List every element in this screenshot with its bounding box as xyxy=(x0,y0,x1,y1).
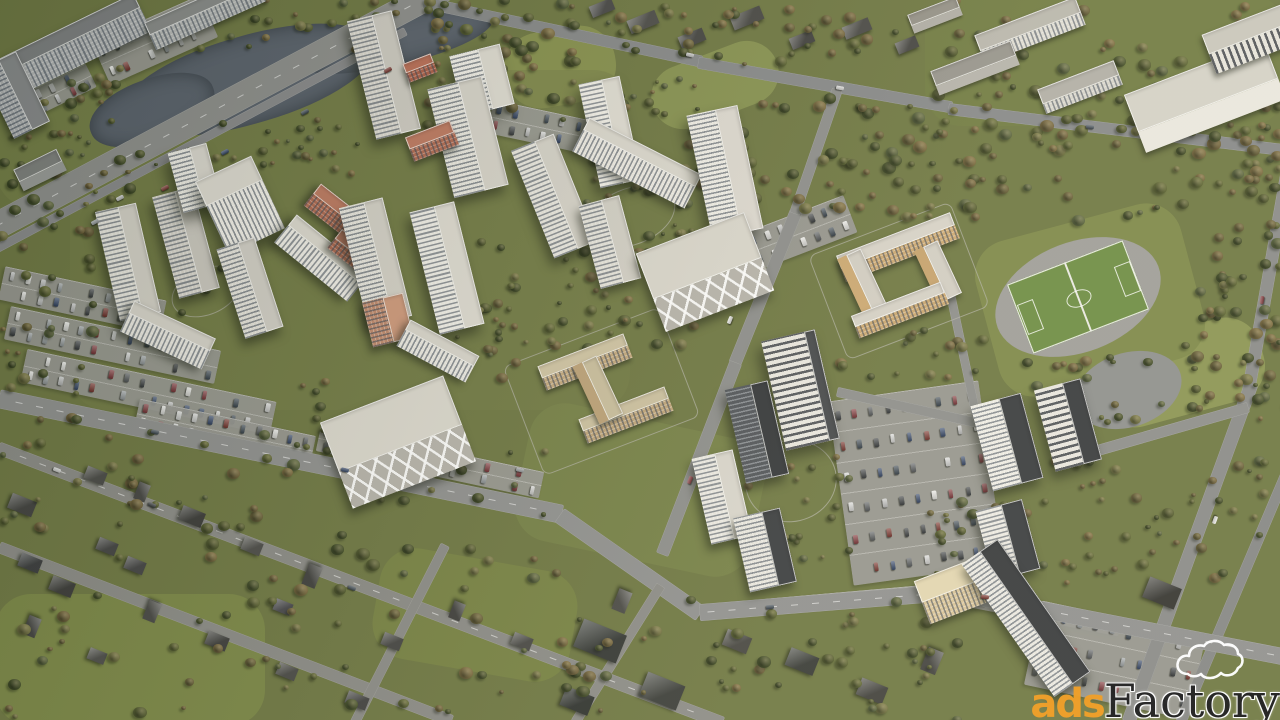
tree xyxy=(286,139,291,143)
tree xyxy=(200,441,208,448)
tree xyxy=(465,544,476,553)
tree xyxy=(470,613,483,624)
tree xyxy=(490,17,500,26)
tree xyxy=(1071,114,1083,124)
parked-car xyxy=(915,493,921,503)
tree xyxy=(598,708,603,713)
parked-car xyxy=(1087,649,1093,659)
tree xyxy=(1258,122,1266,129)
tree xyxy=(577,617,583,622)
parked-car xyxy=(48,83,56,93)
tree xyxy=(557,637,568,647)
parked-car xyxy=(223,419,229,429)
tree xyxy=(1226,277,1237,286)
tree xyxy=(956,342,968,352)
tree xyxy=(818,155,829,164)
tree xyxy=(308,157,313,161)
tree xyxy=(245,658,256,667)
tree xyxy=(1234,379,1243,387)
tree xyxy=(370,0,379,6)
tree xyxy=(795,533,804,540)
tree xyxy=(661,111,667,116)
tree xyxy=(250,15,260,23)
tree xyxy=(392,10,399,16)
tree xyxy=(1253,383,1258,387)
parked-car xyxy=(172,363,178,373)
tree xyxy=(1189,499,1195,504)
tree xyxy=(231,155,237,160)
tree xyxy=(246,44,252,49)
tree xyxy=(1233,237,1242,245)
tree xyxy=(317,126,323,131)
tree xyxy=(7,179,19,189)
tree xyxy=(219,120,227,127)
tree xyxy=(294,442,300,447)
tree xyxy=(941,118,950,125)
tree xyxy=(459,667,473,679)
tree xyxy=(1252,394,1264,405)
tree xyxy=(37,217,49,227)
tree xyxy=(862,134,868,139)
tree xyxy=(1010,84,1016,89)
tree xyxy=(27,194,40,205)
tree xyxy=(833,202,846,213)
tree xyxy=(1212,251,1223,260)
tree xyxy=(1138,59,1151,70)
parked-car xyxy=(851,409,857,419)
parked-car xyxy=(124,352,130,362)
tree xyxy=(1057,63,1070,74)
parked-car xyxy=(176,410,182,420)
tree xyxy=(298,145,304,150)
tree xyxy=(788,51,795,57)
tree xyxy=(1215,497,1223,504)
tree xyxy=(1104,419,1111,425)
tree xyxy=(93,592,102,599)
tree xyxy=(445,21,453,28)
tree xyxy=(1080,356,1092,366)
tree xyxy=(19,243,27,250)
tree xyxy=(1080,484,1086,489)
tree xyxy=(1247,145,1260,156)
parked-car xyxy=(143,404,149,414)
tree xyxy=(258,147,268,156)
tree xyxy=(259,430,270,440)
tree xyxy=(1209,131,1221,141)
tree xyxy=(664,9,674,18)
tree xyxy=(661,232,666,236)
parked-car xyxy=(940,428,946,438)
tree xyxy=(274,139,280,144)
tree xyxy=(35,438,46,448)
tree xyxy=(803,497,809,502)
tree xyxy=(1191,366,1197,371)
tree xyxy=(894,371,901,377)
tree xyxy=(1240,126,1251,135)
tree xyxy=(107,462,118,471)
tree xyxy=(541,28,554,39)
tree xyxy=(334,584,346,594)
tree xyxy=(524,88,533,95)
tree xyxy=(310,673,318,680)
tree xyxy=(556,0,569,9)
tree xyxy=(438,36,448,44)
car xyxy=(766,605,774,610)
parked-car xyxy=(123,61,131,71)
tree xyxy=(511,323,518,329)
tree xyxy=(1193,533,1201,540)
watermark-text: adsFactory xyxy=(1030,678,1280,720)
tree xyxy=(1258,194,1269,203)
tree xyxy=(1063,141,1073,150)
tree xyxy=(1177,199,1189,209)
tree xyxy=(1227,122,1234,128)
parked-car xyxy=(960,456,966,466)
tree xyxy=(47,647,52,651)
tree xyxy=(348,170,356,177)
tree xyxy=(283,685,289,690)
tree xyxy=(1191,385,1201,393)
parked-car xyxy=(69,86,77,96)
car xyxy=(981,595,989,600)
tree xyxy=(1137,559,1149,569)
tree xyxy=(713,642,720,648)
tree xyxy=(719,679,724,684)
tree xyxy=(1245,186,1258,197)
tree xyxy=(319,149,328,157)
tree xyxy=(996,184,1008,194)
tree xyxy=(781,187,792,197)
tree xyxy=(1273,129,1280,140)
tree xyxy=(907,104,913,109)
tree xyxy=(169,643,178,651)
tree xyxy=(1156,66,1167,76)
tree xyxy=(965,179,976,189)
tree xyxy=(521,648,527,653)
tree xyxy=(1099,415,1104,419)
tree xyxy=(989,153,997,160)
tree xyxy=(455,335,460,339)
parked-car xyxy=(886,528,892,538)
tree xyxy=(77,135,82,139)
parked-car xyxy=(936,396,942,406)
car xyxy=(727,316,734,325)
tree xyxy=(312,415,320,422)
tree xyxy=(10,511,18,518)
tree xyxy=(952,716,962,720)
tree xyxy=(867,373,875,380)
parked-car xyxy=(861,469,867,479)
parked-car xyxy=(37,296,43,306)
tree xyxy=(312,388,320,395)
tree xyxy=(1157,531,1163,536)
tree xyxy=(1240,360,1246,365)
tree xyxy=(78,364,85,370)
parked-car xyxy=(139,355,145,365)
tree xyxy=(50,223,58,230)
tree xyxy=(1218,569,1228,578)
tree xyxy=(1260,319,1273,330)
tree xyxy=(641,690,647,695)
tree xyxy=(1196,405,1204,412)
tree xyxy=(1229,507,1238,514)
tree xyxy=(681,12,688,18)
tree xyxy=(508,450,514,455)
tree xyxy=(845,646,855,655)
tree xyxy=(1052,362,1061,370)
tree xyxy=(547,337,556,345)
tree xyxy=(837,188,846,196)
tree xyxy=(227,33,235,40)
tree xyxy=(601,291,610,298)
parked-car xyxy=(108,370,114,380)
parked-car xyxy=(899,495,905,505)
parked-car xyxy=(945,457,951,467)
tree xyxy=(980,143,992,154)
tree xyxy=(1264,231,1274,239)
tree xyxy=(938,538,946,545)
parked-car xyxy=(948,489,954,499)
tree xyxy=(883,643,891,649)
parked-car xyxy=(481,473,487,483)
cottage-house xyxy=(611,588,632,614)
tree xyxy=(201,523,214,534)
tree xyxy=(105,89,112,95)
tree xyxy=(855,203,865,211)
tree xyxy=(477,671,487,679)
parked-car xyxy=(88,383,94,393)
tree xyxy=(499,0,511,5)
tree xyxy=(1061,559,1070,566)
tree xyxy=(294,584,308,596)
tree xyxy=(470,567,479,574)
tree xyxy=(321,378,330,386)
parked-car xyxy=(170,383,176,393)
parked-car xyxy=(63,321,69,331)
tree xyxy=(868,705,877,712)
tree xyxy=(1173,540,1179,545)
tree xyxy=(37,656,48,665)
tree xyxy=(205,552,217,562)
tree xyxy=(218,521,230,531)
parked-car xyxy=(123,373,129,383)
tree xyxy=(569,4,575,9)
tree xyxy=(15,351,20,356)
tree xyxy=(758,100,767,108)
tree xyxy=(1276,340,1280,346)
tree xyxy=(799,555,807,562)
tree xyxy=(913,141,927,153)
tree xyxy=(624,296,633,304)
tree xyxy=(824,93,837,104)
tree xyxy=(1233,461,1245,471)
tree xyxy=(787,169,799,179)
tree xyxy=(731,628,744,639)
tree xyxy=(760,175,770,184)
tree xyxy=(902,134,915,145)
tree xyxy=(775,682,782,688)
tree xyxy=(1095,569,1102,575)
tree xyxy=(1239,274,1247,281)
parked-car xyxy=(105,293,111,303)
parked-car xyxy=(148,49,156,59)
tree xyxy=(86,326,99,337)
tree xyxy=(1111,566,1118,572)
tree xyxy=(927,510,934,516)
tree xyxy=(912,659,918,664)
tree xyxy=(507,283,515,290)
parked-car xyxy=(484,462,490,472)
tree xyxy=(176,500,182,506)
tree xyxy=(808,464,816,471)
tree xyxy=(615,12,627,22)
parked-car xyxy=(9,327,15,337)
tree xyxy=(130,499,143,510)
tree xyxy=(1259,305,1271,315)
watermark-factory-label: Factory xyxy=(1104,678,1280,720)
tree xyxy=(260,161,267,167)
parked-car xyxy=(853,534,859,544)
parked-car xyxy=(870,531,876,541)
parked-car xyxy=(808,214,815,224)
tree xyxy=(784,23,795,32)
tree xyxy=(1143,358,1153,366)
parked-car xyxy=(894,466,900,476)
tree xyxy=(971,126,979,133)
tree xyxy=(954,29,965,38)
tree xyxy=(499,690,504,694)
tree xyxy=(108,118,115,124)
parked-car xyxy=(877,467,883,477)
tree xyxy=(1251,514,1258,520)
tree xyxy=(57,611,70,622)
tree xyxy=(560,117,566,122)
tree xyxy=(1264,370,1276,381)
tree xyxy=(963,202,977,214)
tree xyxy=(868,699,874,704)
tree xyxy=(481,33,488,39)
tree xyxy=(21,271,31,279)
parked-car xyxy=(907,558,913,568)
tree xyxy=(651,108,659,115)
tree xyxy=(742,62,747,66)
tree xyxy=(794,476,800,481)
parked-car xyxy=(54,93,62,103)
tree xyxy=(586,305,597,314)
tree xyxy=(1275,165,1280,172)
tree xyxy=(922,673,929,679)
tree xyxy=(511,358,521,367)
tree xyxy=(673,223,678,227)
tree xyxy=(398,496,409,505)
tree xyxy=(722,685,730,692)
tree xyxy=(76,95,85,102)
parked-car xyxy=(207,416,213,426)
cottage-house xyxy=(589,0,616,18)
tree xyxy=(676,230,682,235)
tree xyxy=(606,20,611,24)
parked-car xyxy=(59,337,65,347)
tree xyxy=(1271,238,1280,249)
tree xyxy=(1269,183,1280,193)
parked-car xyxy=(924,554,930,564)
tree xyxy=(212,154,220,161)
parked-car xyxy=(907,433,913,443)
tree xyxy=(1265,174,1273,181)
tree xyxy=(757,656,771,668)
tree xyxy=(1259,489,1269,498)
tree xyxy=(1174,56,1187,67)
tree xyxy=(89,301,97,308)
tree xyxy=(8,679,21,690)
tree xyxy=(511,482,518,488)
tree xyxy=(943,513,948,518)
tree xyxy=(848,39,860,49)
tree xyxy=(558,317,568,326)
tree xyxy=(529,63,539,71)
parked-car xyxy=(240,424,246,434)
tree xyxy=(1196,543,1207,553)
tree xyxy=(730,666,738,672)
tree xyxy=(887,205,900,216)
tree xyxy=(870,142,880,150)
tree xyxy=(444,45,451,51)
tree xyxy=(963,156,975,166)
tree xyxy=(1145,525,1150,529)
tree xyxy=(920,327,927,333)
tree xyxy=(1084,532,1093,540)
tree xyxy=(98,100,103,104)
tree xyxy=(1123,211,1133,220)
tree xyxy=(1072,215,1085,226)
tree xyxy=(1090,481,1096,486)
tree xyxy=(552,569,561,577)
tree xyxy=(1271,151,1280,161)
tree xyxy=(695,107,700,111)
tree xyxy=(833,454,840,460)
tree xyxy=(247,597,261,609)
parked-car xyxy=(272,429,278,439)
tree xyxy=(569,21,580,30)
tree xyxy=(73,391,79,396)
tree xyxy=(262,656,270,663)
tree xyxy=(808,638,817,646)
parked-car xyxy=(57,376,63,386)
tree xyxy=(514,71,525,81)
parked-car xyxy=(509,126,515,136)
tree xyxy=(863,169,870,175)
tree xyxy=(6,383,16,392)
tree xyxy=(617,29,625,36)
tree xyxy=(0,452,6,458)
tree xyxy=(1085,552,1093,559)
parked-car xyxy=(90,345,96,355)
tree xyxy=(869,192,877,199)
tree xyxy=(847,159,858,168)
tree xyxy=(641,636,648,642)
tree xyxy=(1064,580,1070,585)
tree xyxy=(875,703,888,714)
tree xyxy=(460,585,468,592)
tree xyxy=(202,495,208,500)
tree xyxy=(583,671,596,682)
tree xyxy=(875,131,884,139)
tree xyxy=(972,368,979,374)
car xyxy=(1212,516,1218,525)
parked-car xyxy=(910,463,916,473)
tree xyxy=(845,475,853,482)
parked-car xyxy=(192,413,198,423)
